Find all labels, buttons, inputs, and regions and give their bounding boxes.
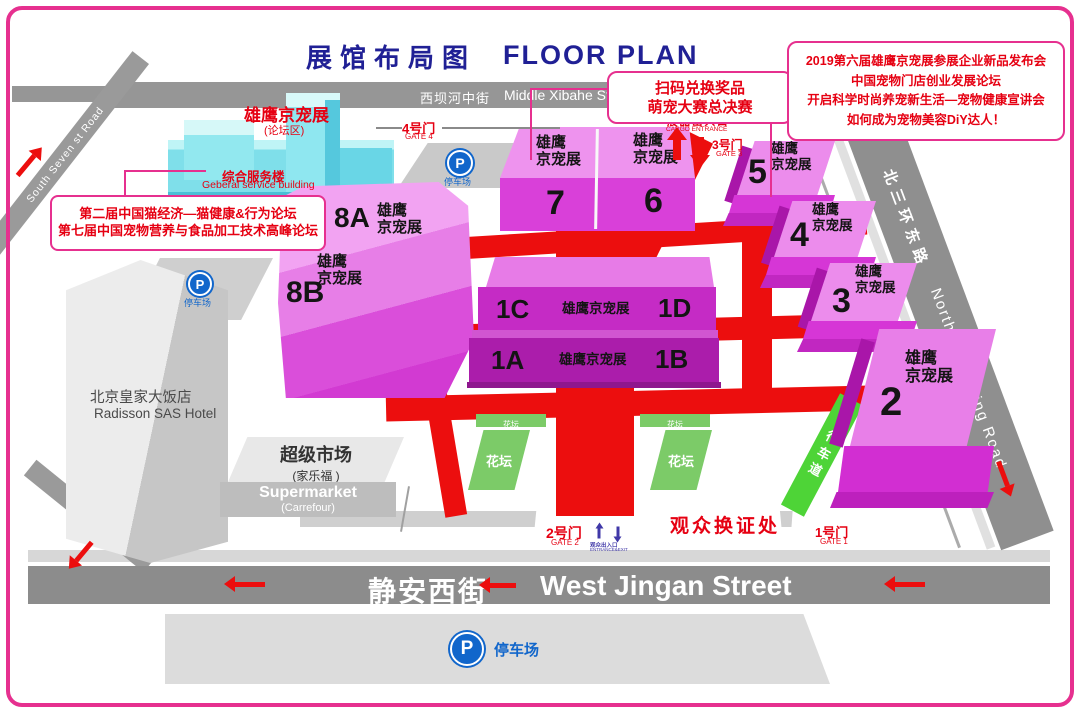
hall-2-number: 2 bbox=[880, 380, 902, 425]
gate4-line-left bbox=[376, 127, 402, 129]
supermarket-roof: 超级市场 (家乐福 ) bbox=[228, 437, 404, 482]
page-title-en: FLOOR PLAN bbox=[503, 40, 699, 71]
xibahe-street-label-zh: 西坝河中街 bbox=[420, 88, 490, 107]
mid-callout-connector-v bbox=[530, 88, 532, 160]
flower-bed-bar-right: 花坛 bbox=[640, 414, 710, 427]
right-callout-connector-v bbox=[770, 119, 772, 197]
hall-2-base bbox=[830, 492, 994, 508]
flower-bed-bar-left-label: 花坛 bbox=[503, 420, 519, 429]
hall-4-brand: 雄鹰 京宠展 bbox=[812, 202, 853, 233]
hall-7-brand: 雄鹰 京宠展 bbox=[536, 134, 581, 169]
jingan-mid-arrow bbox=[490, 583, 516, 588]
hall-8a-brand: 雄鹰 京宠展 bbox=[377, 202, 422, 237]
gate3-label-en: GATE 3 bbox=[716, 149, 742, 158]
flower-bed-bar-right-label: 花坛 bbox=[667, 420, 683, 429]
flower-bed-left-label: 花坛 bbox=[486, 451, 512, 470]
hall-1a-number: 1A bbox=[491, 345, 524, 376]
events-callout-line4: 如何成为宠物美容DiY达人！ bbox=[789, 111, 1063, 131]
hall-1ab-base-strip bbox=[467, 382, 721, 388]
contest-callout-line2: 萌宠大赛总决赛 bbox=[609, 98, 791, 117]
hall-6-number: 6 bbox=[644, 182, 663, 221]
southseven-road-arrow bbox=[16, 154, 37, 177]
gate4-label-en: GATE 4 bbox=[405, 132, 433, 141]
page-title-zh: 展馆布局图 bbox=[306, 38, 476, 75]
visitor-entrance-label-en: ENTRANCE&EXIT bbox=[590, 547, 628, 552]
left-callout-connector-h bbox=[124, 170, 206, 172]
hall-5-brand-line2: 京宠展 bbox=[771, 157, 812, 172]
hall-7-brand-line2: 京宠展 bbox=[536, 151, 581, 168]
hall-5-brand-line1: 雄鹰 bbox=[771, 141, 798, 156]
hall-8a-number: 8A bbox=[334, 202, 370, 234]
hall-1cd-front: 1C 雄鹰京宠展 1D bbox=[478, 287, 716, 330]
hall-4-number: 4 bbox=[790, 216, 809, 255]
contest-callout-line1: 扫码兑换奖品 bbox=[609, 79, 791, 98]
supermarket-label-zh: 超级市场 bbox=[228, 441, 404, 467]
hall-2-brand: 雄鹰 京宠展 bbox=[905, 350, 953, 387]
left-forum-callout: 第二届中国猫经济—猫健康&行为论坛 第七届中国宠物营养与食品加工技术高峰论坛 bbox=[50, 195, 326, 251]
hall-1c-number: 1C bbox=[496, 294, 529, 325]
flower-bed-bar-left: 花坛 bbox=[476, 414, 546, 427]
gate4-line-right bbox=[442, 127, 560, 129]
hall-2-brand-line1: 雄鹰 bbox=[905, 350, 937, 367]
visitor-out-arrow bbox=[617, 527, 620, 537]
supermarket-label-en: Supermarket bbox=[220, 484, 396, 502]
supermarket-label-en-sub: (Carrefour) bbox=[220, 502, 396, 514]
hall-8a-brand-line2: 京宠展 bbox=[377, 219, 422, 236]
hall-1ab-front: 1A 雄鹰京宠展 1B bbox=[469, 338, 719, 382]
south-parking-icon: P bbox=[450, 632, 484, 666]
hall-4-brand-line1: 雄鹰 bbox=[812, 202, 839, 217]
left-forum-callout-line1: 第二届中国猫经济—猫健康&行为论坛 bbox=[52, 205, 324, 222]
hall-5-number: 5 bbox=[748, 153, 767, 192]
badge-office-label: 观众换证处 bbox=[670, 511, 780, 538]
visitor-in-arrow bbox=[598, 529, 601, 539]
hall-1d-number: 1D bbox=[658, 293, 691, 324]
contest-callout: 扫码兑换奖品 萌宠大赛总决赛 bbox=[607, 71, 793, 124]
events-callout: 2019第六届雄鹰京宠展参展企业新品发布会 中国宠物门店创业发展论坛 开启科学时… bbox=[787, 41, 1065, 141]
hall-3-brand-line2: 京宠展 bbox=[855, 280, 896, 295]
left-callout-connector-v bbox=[124, 170, 126, 198]
hall-7-number: 7 bbox=[546, 184, 565, 223]
hall-1ab-brand: 雄鹰京宠展 bbox=[559, 352, 627, 368]
hall-3-brand-line1: 雄鹰 bbox=[855, 264, 882, 279]
jingan-left-arrow bbox=[235, 582, 265, 587]
events-callout-line1: 2019第六届雄鹰京宠展参展企业新品发布会 bbox=[789, 52, 1063, 72]
gate1-label-en: GATE 1 bbox=[820, 537, 848, 546]
hall-8b-brand-line1: 雄鹰 bbox=[317, 253, 347, 270]
service-building-label-en: Geberal service building bbox=[202, 179, 315, 191]
hall-1cd-roof bbox=[486, 257, 714, 287]
hall-1b-number: 1B bbox=[655, 344, 688, 375]
gate2-label-en: GATE 2 bbox=[551, 538, 579, 547]
hotel-label-zh: 北京皇家大饭店 bbox=[90, 386, 192, 407]
left-forum-callout-line2: 第七届中国宠物营养与食品加工技术高峰论坛 bbox=[52, 222, 324, 239]
hall-2-brand-line2: 京宠展 bbox=[905, 368, 953, 385]
north-parking-icon: P bbox=[447, 150, 473, 176]
jingan-street-label-zh: 静安西街 bbox=[368, 570, 488, 610]
hotel-label-en: Radisson SAS Hotel bbox=[94, 406, 216, 421]
hall-3-number: 3 bbox=[832, 282, 851, 321]
supermarket-front: Supermarket (Carrefour) bbox=[220, 482, 396, 517]
hall-1cd-brand: 雄鹰京宠展 bbox=[562, 301, 630, 317]
events-callout-line3: 开启科学时尚养宠新生活—宠物健康宣讲会 bbox=[789, 91, 1063, 111]
west-parking-icon: P bbox=[188, 272, 212, 296]
flower-bed-right: 花坛 bbox=[650, 430, 712, 490]
forum-area-sub-label: (论坛区) bbox=[264, 122, 304, 138]
west-parking-label: 停车场 bbox=[184, 296, 211, 309]
hall-6-brand-line2: 京宠展 bbox=[633, 149, 678, 166]
hall-5-brand: 雄鹰 京宠展 bbox=[771, 141, 812, 172]
hall-8b-number: 8B bbox=[286, 276, 324, 310]
hall-6-brand-line1: 雄鹰 bbox=[633, 132, 663, 149]
south-parking-label: 停车场 bbox=[494, 639, 539, 660]
events-callout-line2: 中国宠物门店创业发展论坛 bbox=[789, 72, 1063, 92]
mid-callout-connector-h bbox=[531, 88, 609, 90]
hall-3-brand: 雄鹰 京宠展 bbox=[855, 264, 896, 295]
cargo-out-arrow bbox=[696, 137, 704, 155]
hall-1ab-roof-strip bbox=[472, 330, 718, 338]
hall-7-brand-line1: 雄鹰 bbox=[536, 134, 566, 151]
hall-4-brand-line2: 京宠展 bbox=[812, 218, 853, 233]
jingan-street-label-en: West Jingan Street bbox=[540, 570, 792, 602]
cargo-in-arrow bbox=[673, 140, 681, 160]
flower-bed-right-label: 花坛 bbox=[668, 451, 694, 470]
flower-bed-left: 花坛 bbox=[468, 430, 530, 490]
hall-8a-brand-line1: 雄鹰 bbox=[377, 202, 407, 219]
hall-2-front bbox=[838, 446, 994, 492]
jingan-right-arrow bbox=[895, 582, 925, 587]
floor-plan-map: 展馆布局图 FLOOR PLAN 西坝河中街 Middle Xibahe Str… bbox=[0, 0, 1080, 713]
north-parking-label: 停车场 bbox=[444, 175, 471, 188]
